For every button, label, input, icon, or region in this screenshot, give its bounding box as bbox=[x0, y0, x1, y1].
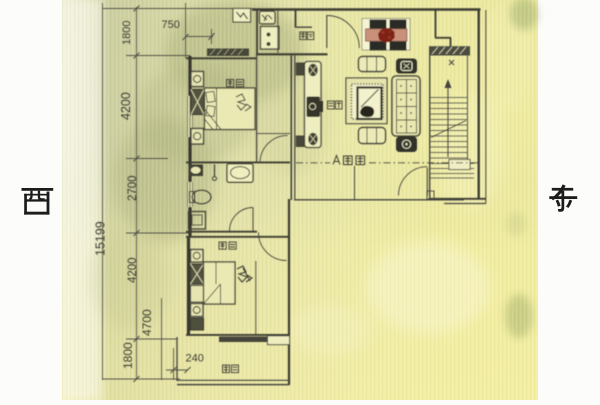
svg-text:2700: 2700 bbox=[127, 175, 139, 201]
svg-text:4200: 4200 bbox=[127, 257, 139, 283]
svg-text:240: 240 bbox=[186, 353, 204, 365]
svg-text:1800: 1800 bbox=[121, 342, 135, 369]
svg-text:750: 750 bbox=[162, 19, 180, 31]
svg-text:4700: 4700 bbox=[140, 309, 154, 336]
svg-text:4200: 4200 bbox=[119, 92, 133, 120]
svg-text:1800: 1800 bbox=[121, 21, 133, 45]
svg-text:15199: 15199 bbox=[94, 221, 108, 256]
